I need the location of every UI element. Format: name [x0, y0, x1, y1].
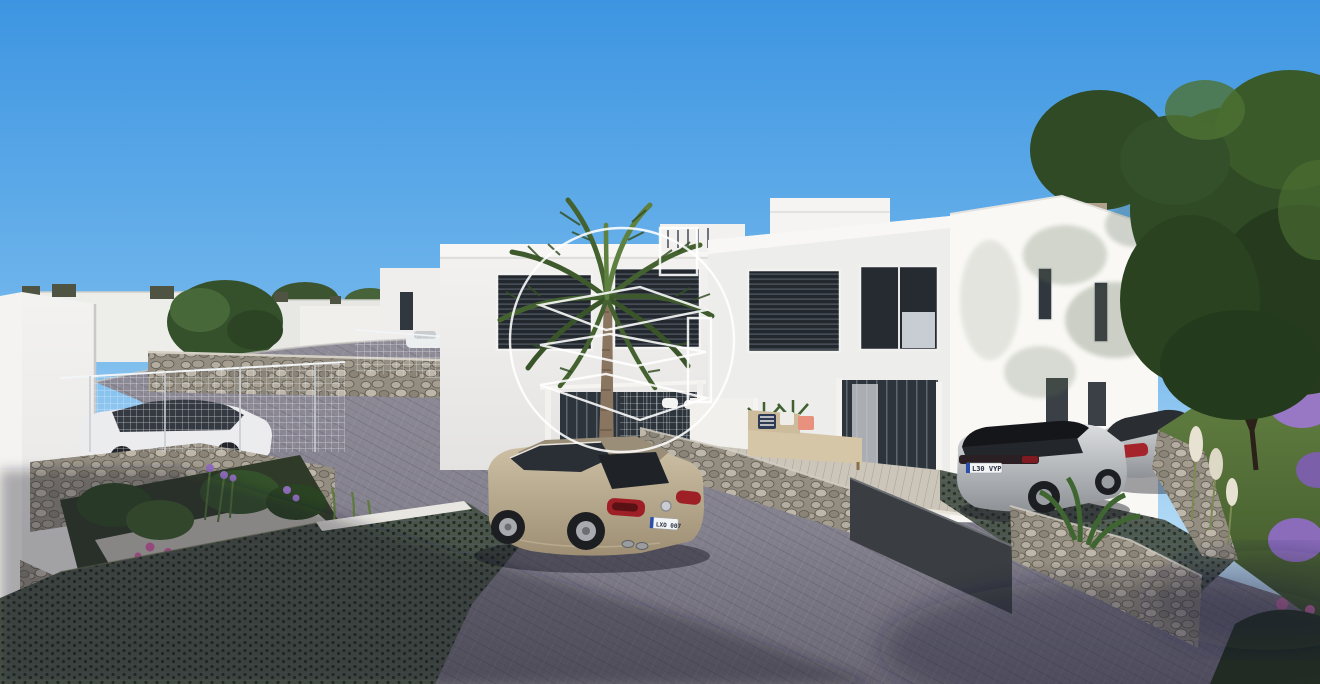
suv-plate-text: L30 VYP [972, 465, 1002, 473]
render-scene: L30 VYP [0, 0, 1320, 684]
suv-plate: L30 VYP [966, 463, 1002, 473]
upper-window [860, 266, 938, 350]
left-mesh-fence [60, 362, 345, 452]
taillight [1022, 456, 1038, 463]
coral-pillow [798, 416, 814, 430]
vw-badge [661, 501, 671, 511]
sedan-plate: LXO 007 [650, 517, 682, 530]
louver-window [748, 270, 840, 352]
dark-door [1088, 382, 1106, 426]
champagne-sedan: LXO 007 [474, 436, 710, 573]
